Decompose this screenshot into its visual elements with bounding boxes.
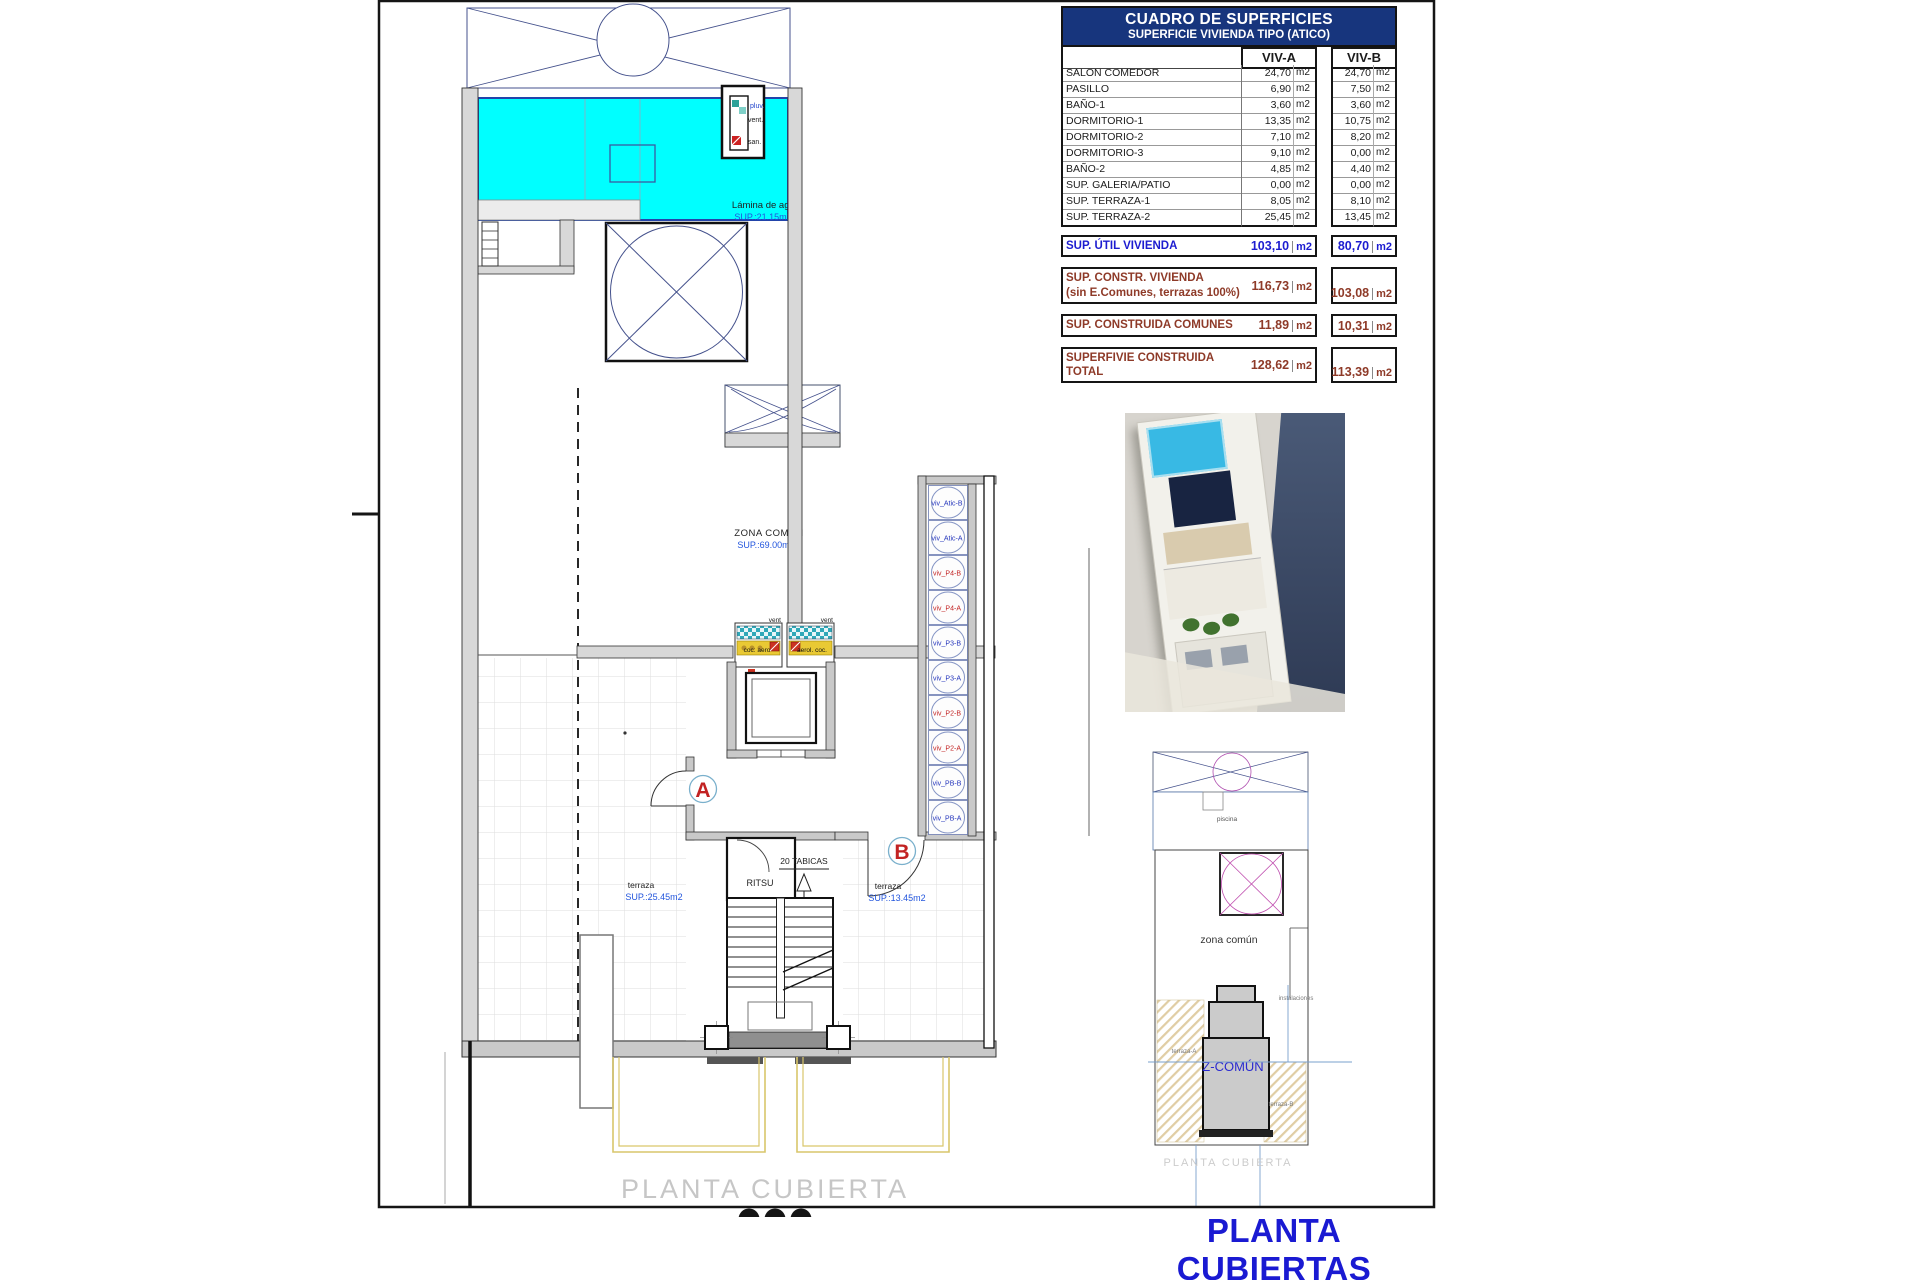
table-subtitle: SUPERFICIE VIVIENDA TIPO (ATICO) (1063, 29, 1395, 41)
riser-label: viv_P4-B (933, 571, 961, 578)
row-value-a: 13,35 (1241, 113, 1293, 130)
table-summaries: SUP. ÚTIL VIVIENDA103,10m280,70m2SUP. CO… (1061, 235, 1397, 383)
terraza-b-area: SUP.:13.45m2 (868, 893, 925, 903)
row-value-b: 0,00 (1331, 177, 1373, 194)
row-value-a: 9,10 (1241, 145, 1293, 162)
table-row: SALON COMEDOR24,70m224,70m2 (1061, 65, 1397, 81)
row-value-a: 24,70 (1241, 65, 1293, 82)
row-value-a: 3,60 (1241, 97, 1293, 114)
render-plant (1202, 621, 1220, 636)
row-value-a: 0,00 (1241, 177, 1293, 194)
row-label: SALON COMEDOR (1061, 65, 1241, 82)
sheet-title: PLANTA CUBIERTAS (1128, 1212, 1420, 1280)
table-row: SUP. GALERIA/PATIO0,00m20,00m2 (1061, 177, 1397, 193)
ladder (482, 222, 498, 266)
riser-cells: viv_Atic-Bviv_Atic-Aviv_P4-Bviv_P4-Aviv_… (929, 486, 968, 835)
summary-value-a: 128,62 (1245, 358, 1289, 372)
stairs (727, 898, 833, 1048)
shaft-label-san: san. (748, 139, 761, 146)
riser-label: viv_PB-A (933, 816, 962, 823)
panel-left-top-label: vent (769, 617, 781, 624)
shaft-label-pluv: pluv. (750, 103, 764, 110)
summary-value-a: 103,10 (1245, 239, 1289, 253)
row-value-b: 7,50 (1331, 81, 1373, 98)
row-value-b: 0,00 (1331, 145, 1373, 162)
mini-terraza-a-hatch (1157, 1000, 1204, 1142)
unit-label: m2 (1373, 113, 1397, 130)
row-label: DORMITORIO-1 (1061, 113, 1241, 130)
mini-terraza-a-label: terraza-A (1172, 1049, 1197, 1055)
section-bubble-b: B (889, 838, 916, 865)
unit-label: m2 (1373, 81, 1397, 98)
table-title: CUADRO DE SUPERFICIES (1063, 11, 1395, 29)
render-ac-unit (1221, 645, 1249, 666)
mini-zona-comun-label: zona común (1200, 934, 1257, 946)
drawing-sheet: Lámina de agua SUP.:21.15m2 pluv. vent. … (0, 0, 1920, 1280)
elevator (727, 662, 835, 758)
installation-panels: vent vent coc: aero aerol. coc. san. (735, 617, 834, 679)
unit-label: m2 (1372, 321, 1392, 333)
terraza-a-label: terraza (628, 880, 655, 890)
pluv-chip (732, 100, 739, 107)
summary-value-b: 10,31 (1325, 319, 1369, 333)
table-row: SUP. TERRAZA-225,45m213,45m2 (1061, 209, 1397, 225)
tabicas-label: 20 TABICAS (780, 856, 828, 866)
riser-label: viv_P2-A (933, 746, 961, 753)
pool-plant-room (478, 220, 574, 274)
render-pool (1146, 419, 1228, 478)
row-label: BAÑO-1 (1061, 97, 1241, 114)
row-label: SUP. GALERIA/PATIO (1061, 177, 1241, 194)
unit-label: m2 (1373, 193, 1397, 210)
elevator-cabin (746, 673, 816, 743)
unit-label: m2 (1373, 145, 1397, 162)
shaft-label-vent: vent. (748, 117, 763, 124)
pool-ledge (478, 200, 640, 220)
unit-label: m2 (1372, 367, 1392, 379)
unit-label: m2 (1292, 241, 1312, 253)
riser-label: viv_Atic-B (931, 501, 962, 508)
unit-label: m2 (1293, 209, 1317, 227)
row-value-b: 13,45 (1331, 209, 1373, 227)
mini-plan-caption: PLANTA CUBIERTA (1163, 1157, 1292, 1169)
unit-label: m2 (1293, 113, 1317, 130)
row-value-a: 4,85 (1241, 161, 1293, 178)
main-floor-plan: Lámina de agua SUP.:21.15m2 pluv. vent. … (445, 4, 1089, 1207)
table-row: DORMITORIO-27,10m28,20m2 (1061, 129, 1397, 145)
riser-label: viv_P4-A (933, 606, 961, 613)
render-deck (1163, 523, 1252, 565)
table-column-header-row: VIV-A VIV-B (1061, 47, 1397, 65)
table-row: PASILLO6,90m27,50m2 (1061, 81, 1397, 97)
row-value-a: 6,90 (1241, 81, 1293, 98)
unit-label: m2 (1293, 81, 1317, 98)
unit-label: m2 (1292, 360, 1312, 372)
table-row: SUP. TERRAZA-18,05m28,10m2 (1061, 193, 1397, 209)
row-label: SUP. TERRAZA-1 (1061, 193, 1241, 210)
summary-value-b: 80,70 (1325, 239, 1369, 253)
render-plant (1182, 617, 1200, 632)
skylight-square (606, 223, 747, 361)
row-value-b: 8,20 (1331, 129, 1373, 146)
summary-value-a: 11,89 (1245, 318, 1289, 332)
summary-label-line: SUP. CONSTR. VIVIENDA (1066, 271, 1240, 285)
summary-label-line: SUPERFIVIE CONSTRUIDA (1066, 351, 1214, 365)
render-3d-aerial (1125, 413, 1345, 712)
mini-piscina-label: piscina (1217, 816, 1238, 823)
summary-label-line: TOTAL (1066, 365, 1214, 379)
summary-row: SUP. CONSTR. VIVIENDA(sin E.Comunes, ter… (1061, 267, 1397, 304)
summary-label-line: (sin E.Comunes, terrazas 100%) (1066, 286, 1240, 300)
mini-terraza-b-label: terraza-B (1269, 1102, 1294, 1108)
riser-label: viv_P3-A (933, 676, 961, 683)
unit-label: m2 (1292, 281, 1312, 293)
summary-value-a: 116,73 (1245, 279, 1289, 293)
table-row: DORMITORIO-113,35m210,75m2 (1061, 113, 1397, 129)
unit-label: m2 (1293, 65, 1317, 82)
row-value-b: 24,70 (1331, 65, 1373, 82)
row-label: BAÑO-2 (1061, 161, 1241, 178)
unit-label: m2 (1373, 161, 1397, 178)
summary-row: SUP. ÚTIL VIVIENDA103,10m280,70m2 (1061, 235, 1397, 257)
row-value-b: 4,40 (1331, 161, 1373, 178)
plan-watermark: PLANTA CUBIERTA (621, 1174, 909, 1204)
row-value-a: 7,10 (1241, 129, 1293, 146)
mini-roof-plan: piscina zona común instalaciones Z-COMÚN… (1148, 752, 1352, 1206)
row-label: DORMITORIO-3 (1061, 145, 1241, 162)
mini-z-comun-label: Z-COMÚN (1202, 1059, 1263, 1074)
unit-label: m2 (1293, 193, 1317, 210)
unit-label: m2 (1293, 161, 1317, 178)
unit-label: m2 (1373, 65, 1397, 82)
zona-comun-area: SUP.:69.00m2 (737, 540, 794, 550)
summary-label-line: SUP. ÚTIL VIVIENDA (1066, 239, 1177, 253)
plan-drawing: Lámina de agua SUP.:21.15m2 pluv. vent. … (0, 0, 1920, 1280)
render-plant (1221, 612, 1239, 627)
unit-label: m2 (1373, 209, 1397, 227)
summary-label-line: SUP. CONSTRUIDA COMUNES (1066, 318, 1233, 332)
terraza-b-label: terraza (875, 881, 902, 891)
services-shaft: pluv. vent. san. (722, 86, 764, 158)
render-skylight-glass (1168, 470, 1236, 527)
unit-label: m2 (1373, 129, 1397, 146)
summary-row: SUPERFIVIE CONSTRUIDATOTAL128,62m2113,39… (1061, 347, 1397, 384)
unit-label: m2 (1293, 97, 1317, 114)
row-value-a: 25,45 (1241, 209, 1293, 227)
unit-label: m2 (1372, 288, 1392, 300)
riser-label: viv_PB-B (933, 781, 962, 788)
section-bubble-a: A (690, 776, 717, 803)
unit-label: m2 (1373, 177, 1397, 194)
summary-row: SUP. CONSTRUIDA COMUNES11,89m210,31m2 (1061, 314, 1397, 336)
row-label: SUP. TERRAZA-2 (1061, 209, 1241, 227)
stair-void (725, 385, 840, 447)
row-label: PASILLO (1061, 81, 1241, 98)
unit-label: m2 (1293, 129, 1317, 146)
survey-dot (623, 731, 626, 734)
table-rows: SALON COMEDOR24,70m224,70m2PASILLO6,90m2… (1061, 65, 1397, 225)
unit-label: m2 (1293, 177, 1317, 194)
row-label: DORMITORIO-2 (1061, 129, 1241, 146)
pool-area-label: SUP.:21.15m2 (734, 212, 791, 222)
unit-label: m2 (1293, 145, 1317, 162)
table-row: DORMITORIO-39,10m20,00m2 (1061, 145, 1397, 161)
surface-table-header: CUADRO DE SUPERFICIES SUPERFICIE VIVIEND… (1061, 6, 1397, 47)
vent-chip (739, 107, 746, 114)
riser-label: viv_P3-B (933, 641, 961, 648)
table-row: BAÑO-24,85m24,40m2 (1061, 161, 1397, 177)
riser-label: viv_Atic-A (931, 536, 962, 543)
ritsu-label: RITSU (747, 878, 774, 888)
mini-instalaciones-label: instalaciones (1279, 996, 1314, 1002)
riser-label: viv_P2-B (933, 711, 961, 718)
render-terrace (1164, 557, 1267, 620)
table-row: BAÑO-13,60m23,60m2 (1061, 97, 1397, 113)
unit-label: m2 (1373, 97, 1397, 114)
unit-label: m2 (1372, 241, 1392, 253)
row-value-b: 3,60 (1331, 97, 1373, 114)
door-a-label: A (695, 779, 710, 802)
summary-value-b: 113,39 (1325, 365, 1369, 379)
summary-value-b: 103,08 (1325, 286, 1369, 300)
panel-right-bottom-label: aerol. coc. (797, 647, 827, 654)
row-value-b: 10,75 (1331, 113, 1373, 130)
row-value-b: 8,10 (1331, 193, 1373, 210)
roof-skylight-top (467, 4, 790, 88)
panel-right-top-label: vent (821, 617, 833, 624)
door-b-label: B (894, 841, 909, 864)
panel-left-bottom-label: coc: aero (744, 647, 771, 654)
up-arrow (797, 874, 811, 891)
unit-label: m2 (1292, 320, 1312, 332)
terraza-a-area: SUP.:25.45m2 (625, 892, 682, 902)
row-value-a: 8,05 (1241, 193, 1293, 210)
surface-table: CUADRO DE SUPERFICIES SUPERFICIE VIVIEND… (1061, 6, 1397, 383)
